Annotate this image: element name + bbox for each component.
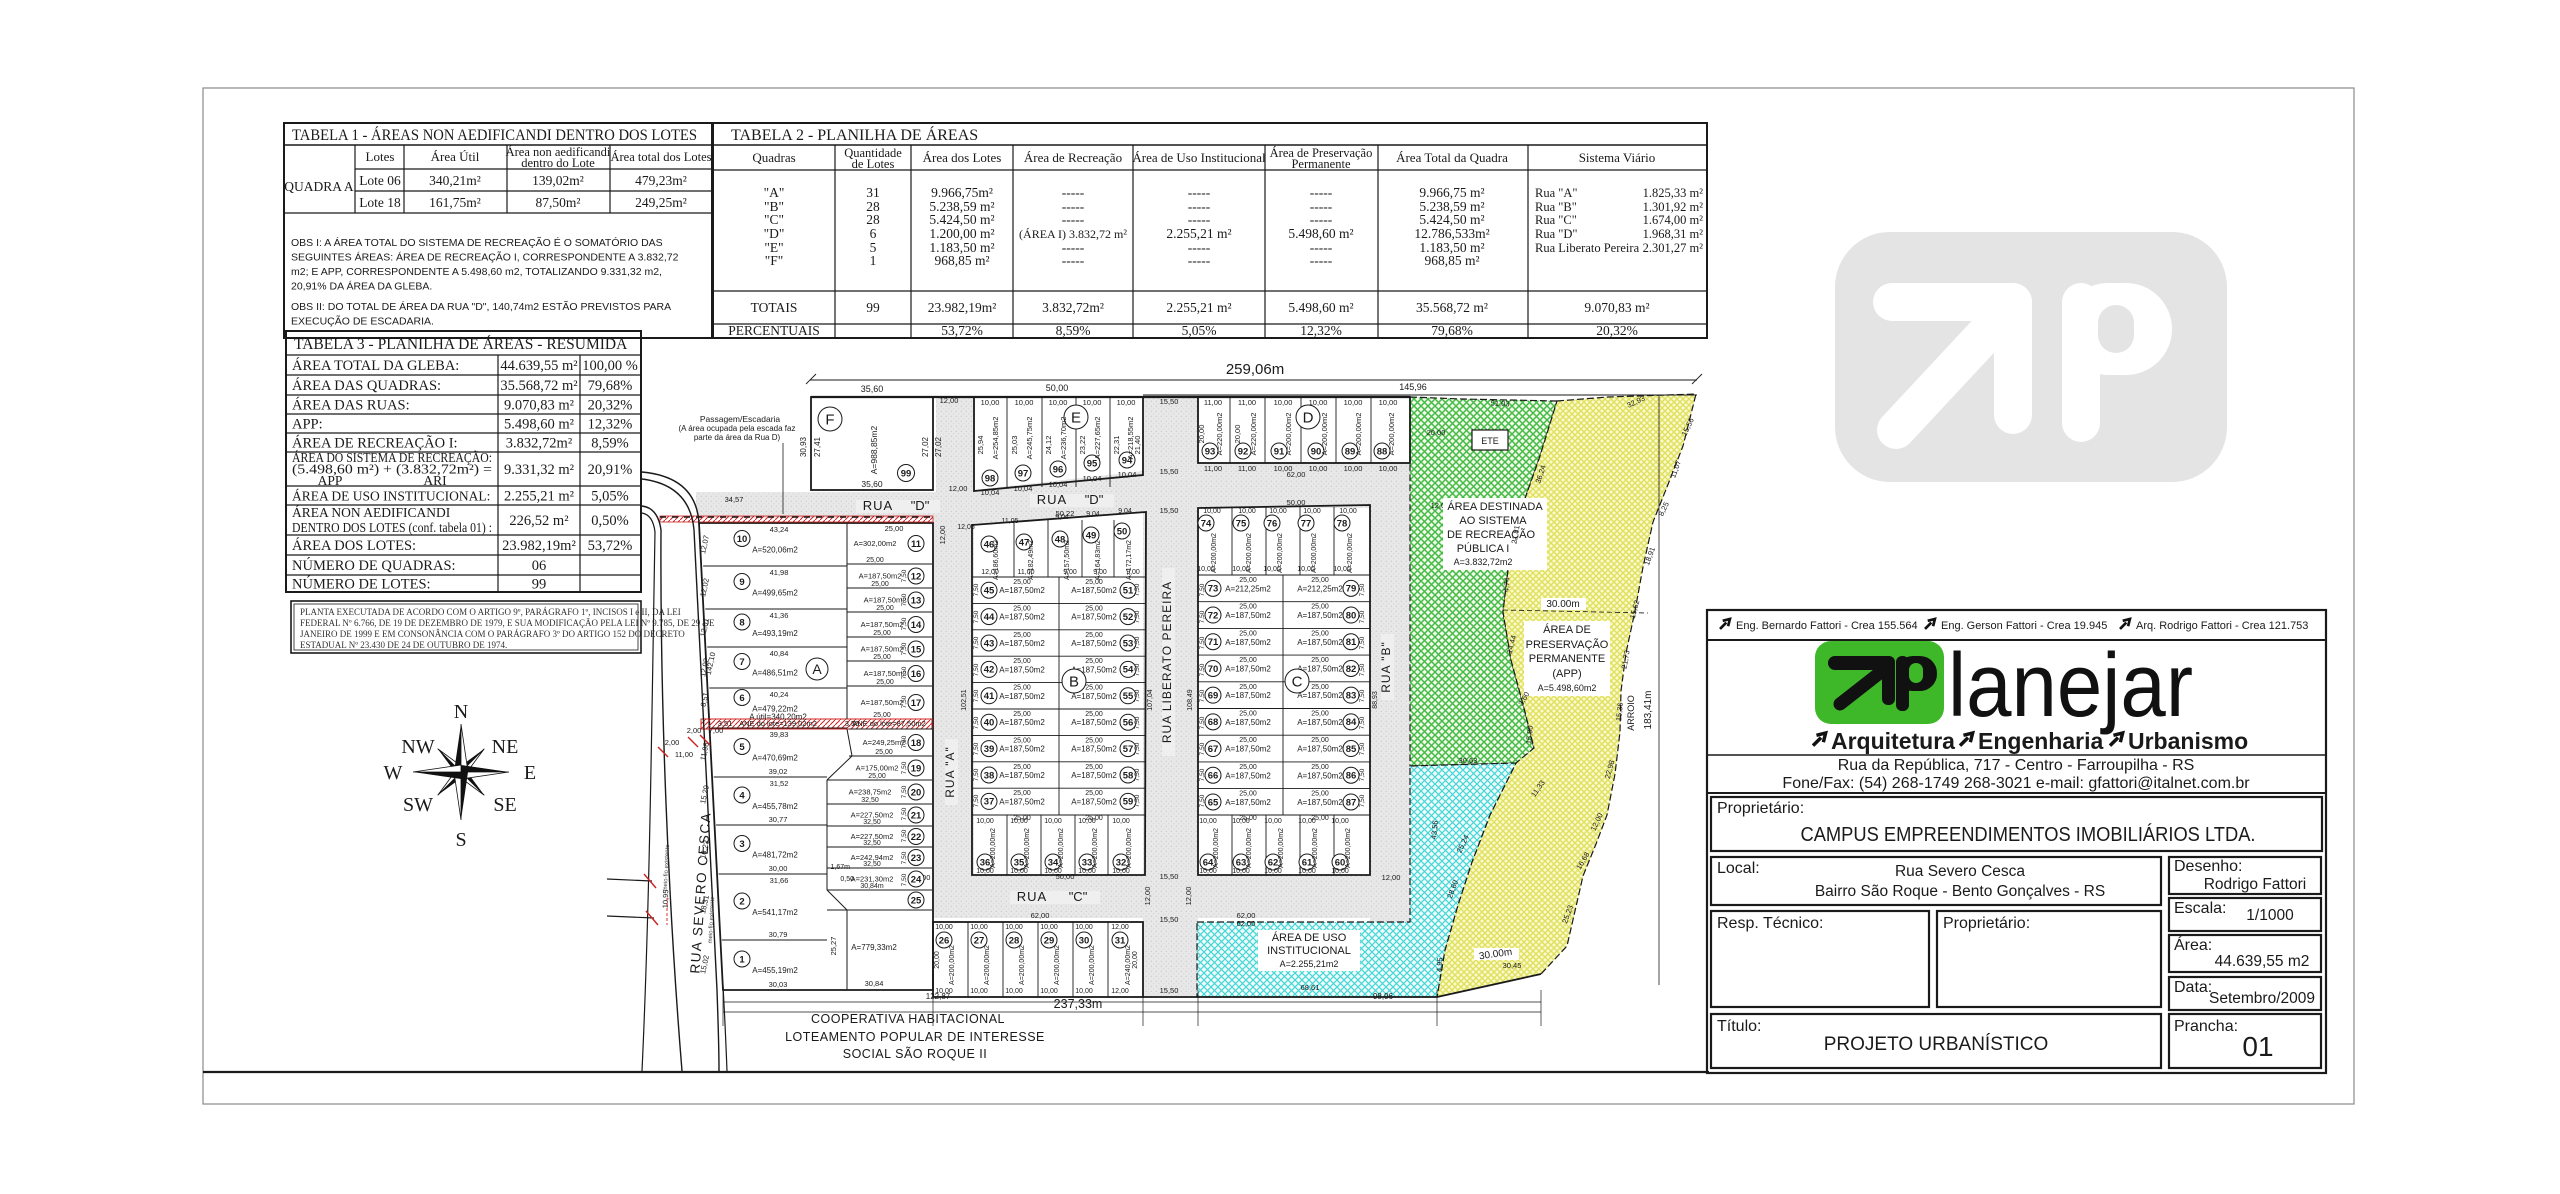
svg-text:62,00: 62,00 (1237, 919, 1256, 928)
svg-text:9,04: 9,04 (1118, 508, 1132, 515)
svg-text:92: 92 (1238, 446, 1249, 457)
svg-text:31,66: 31,66 (770, 876, 789, 885)
svg-text:10,00: 10,00 (1232, 566, 1250, 573)
svg-text:11,00: 11,00 (1204, 464, 1222, 473)
svg-text:Prancha:: Prancha: (2174, 1018, 2238, 1035)
svg-text:10,00: 10,00 (1379, 464, 1398, 473)
svg-text:A=187,50m2: A=187,50m2 (1071, 692, 1117, 701)
svg-text:A=200,00m2: A=200,00m2 (949, 945, 956, 985)
svg-text:2.301,27 m²: 2.301,27 m² (1643, 241, 1704, 255)
svg-text:97: 97 (1018, 468, 1029, 479)
svg-text:A=493,19m2: A=493,19m2 (752, 629, 798, 638)
svg-text:7,50: 7,50 (973, 794, 980, 807)
svg-text:A=187,50m2: A=187,50m2 (861, 620, 904, 629)
svg-text:10,00: 10,00 (970, 988, 988, 995)
svg-text:100,00 %: 100,00 % (582, 358, 638, 374)
svg-text:10,00: 10,00 (1005, 924, 1023, 931)
svg-text:A=486,51m2: A=486,51m2 (752, 669, 798, 678)
svg-text:10,00: 10,00 (1117, 398, 1136, 407)
svg-text:30,84m: 30,84m (860, 883, 884, 890)
svg-text:15,50: 15,50 (1160, 467, 1179, 476)
svg-text:m2; E APP, CORRESPONDENTE: m2; E APP, CORRESPONDENTE A 5.498,60 m2,… (291, 266, 662, 278)
svg-text:A=187,50m2: A=187,50m2 (1071, 586, 1117, 595)
svg-text:A=187,50m2: A=187,50m2 (1071, 771, 1117, 780)
svg-text:968,85 m²: 968,85 m² (934, 253, 989, 268)
svg-text:39,02: 39,02 (769, 767, 788, 776)
svg-text:25,00: 25,00 (1013, 685, 1031, 692)
svg-text:-----: ----- (1188, 185, 1211, 200)
svg-text:A=187,50m2: A=187,50m2 (1225, 638, 1271, 647)
svg-text:Rua "B": Rua "B" (1535, 200, 1577, 214)
svg-text:87,50m²: 87,50m² (536, 195, 581, 210)
svg-text:25,00: 25,00 (1239, 711, 1257, 718)
svg-text:F: F (825, 411, 834, 428)
svg-text:11,05: 11,05 (1002, 518, 1019, 525)
svg-text:139,02m²: 139,02m² (532, 173, 584, 188)
svg-text:20,00: 20,00 (934, 951, 941, 969)
svg-text:25,00: 25,00 (1311, 630, 1329, 637)
svg-text:10,00: 10,00 (970, 924, 988, 931)
svg-text:A=187,50m2: A=187,50m2 (861, 645, 904, 654)
svg-text:Rodrigo Fattori: Rodrigo Fattori (2204, 876, 2307, 893)
svg-text:-----: ----- (1188, 253, 1211, 268)
svg-text:8: 8 (739, 617, 744, 628)
svg-text:25,00: 25,00 (1085, 658, 1103, 665)
svg-text:32,50: 32,50 (863, 840, 881, 847)
svg-text:8,59%: 8,59% (591, 436, 628, 452)
svg-text:12,00: 12,00 (981, 569, 999, 576)
svg-text:30,79: 30,79 (769, 930, 788, 939)
svg-text:Lote 06: Lote 06 (359, 173, 401, 188)
svg-text:15,50: 15,50 (1160, 872, 1179, 881)
svg-text:98,96: 98,96 (1373, 992, 1394, 1001)
svg-text:10,00: 10,00 (1078, 818, 1096, 825)
svg-text:10,04: 10,04 (1014, 484, 1033, 493)
svg-text:43,24: 43,24 (770, 525, 789, 534)
svg-text:25,00: 25,00 (871, 581, 889, 588)
svg-text:Área de Recreação: Área de Recreação (1024, 150, 1122, 165)
svg-text:Rua "D": Rua "D" (1535, 227, 1578, 241)
svg-text:25,00: 25,00 (1239, 630, 1257, 637)
svg-text:NW: NW (401, 736, 434, 758)
svg-text:249,25m²: 249,25m² (635, 195, 687, 210)
svg-text:A=254,85m2: A=254,85m2 (991, 417, 1000, 460)
svg-text:51: 51 (1123, 586, 1134, 597)
svg-text:A=187,50m2: A=187,50m2 (1225, 611, 1271, 620)
svg-text:CAMPUS EMPREENDIMENTOS IMOBILI: CAMPUS EMPREENDIMENTOS IMOBILIÁRIOS LTDA… (1801, 823, 2256, 846)
svg-text:9,00: 9,00 (1126, 569, 1140, 576)
svg-text:38: 38 (984, 770, 995, 781)
svg-text:Título:: Título: (1717, 1018, 1761, 1035)
svg-text:1.968,31 m²: 1.968,31 m² (1643, 227, 1704, 241)
svg-text:A=187,50m2: A=187,50m2 (999, 718, 1045, 727)
svg-text:7,50: 7,50 (901, 735, 908, 748)
svg-text:5: 5 (739, 742, 745, 753)
svg-text:7,50: 7,50 (1199, 689, 1206, 702)
svg-text:01: 01 (2242, 1031, 2273, 1062)
svg-text:88,93: 88,93 (1372, 691, 1379, 709)
svg-text:A=220,00m2: A=220,00m2 (1215, 413, 1224, 456)
svg-text:10,00: 10,00 (1197, 566, 1215, 573)
svg-text:5.424,50 m²: 5.424,50 m² (1419, 212, 1484, 227)
svg-text:99: 99 (532, 577, 547, 593)
svg-text:A=187,50m2: A=187,50m2 (859, 572, 902, 581)
svg-text:21,40: 21,40 (1133, 436, 1142, 455)
svg-text:A=200,00m2: A=200,00m2 (990, 828, 997, 868)
svg-text:25,00: 25,00 (1013, 711, 1031, 718)
svg-text:Engenharia: Engenharia (1978, 728, 2103, 754)
svg-text:25,00: 25,00 (1013, 632, 1031, 639)
svg-text:A=187,50m2: A=187,50m2 (1225, 798, 1271, 807)
svg-text:A=187,50m2: A=187,50m2 (1225, 771, 1271, 780)
svg-text:A=3.832,72m2: A=3.832,72m2 (1454, 557, 1513, 567)
svg-text:E: E (524, 762, 536, 784)
svg-text:A=187,50m2: A=187,50m2 (999, 613, 1045, 622)
svg-text:13: 13 (911, 595, 922, 606)
svg-text:A=212,25m2: A=212,25m2 (1225, 584, 1271, 593)
svg-text:10,00: 10,00 (1344, 398, 1363, 407)
svg-text:7,50: 7,50 (1199, 663, 1206, 676)
svg-text:99: 99 (901, 468, 912, 479)
svg-text:10,04: 10,04 (1118, 470, 1137, 479)
svg-text:7,50: 7,50 (1134, 583, 1141, 596)
svg-text:63: 63 (1236, 857, 1247, 868)
svg-text:10,00: 10,00 (1274, 398, 1293, 407)
svg-text:25,00: 25,00 (1013, 790, 1031, 797)
svg-text:23.982,19m²: 23.982,19m² (928, 300, 997, 315)
svg-text:40,24: 40,24 (770, 690, 789, 699)
svg-text:RUA LIBERATO PEREIRA: RUA LIBERATO PEREIRA (1160, 581, 1174, 743)
svg-text:12,02: 12,02 (698, 577, 711, 597)
svg-text:44.639,55 m²: 44.639,55 m² (500, 358, 578, 374)
svg-text:108,49: 108,49 (1187, 689, 1194, 711)
svg-text:62: 62 (1268, 857, 1279, 868)
svg-text:Proprietário:: Proprietário: (1717, 800, 1804, 817)
svg-text:A=5.498,60m2: A=5.498,60m2 (1538, 683, 1597, 693)
svg-text:79,68%: 79,68% (588, 378, 633, 394)
svg-text:10,00: 10,00 (1309, 398, 1328, 407)
svg-text:22: 22 (911, 832, 922, 843)
svg-text:PÚBLICA I: PÚBLICA I (1457, 542, 1510, 555)
svg-text:10,00: 10,00 (981, 398, 1000, 407)
svg-text:7,50: 7,50 (973, 742, 980, 755)
svg-text:9.966,75 m²: 9.966,75 m² (1419, 185, 1484, 200)
svg-text:7,50: 7,50 (1134, 768, 1141, 781)
svg-text:NE: NE (492, 736, 519, 758)
svg-text:31,52: 31,52 (770, 779, 789, 788)
svg-text:7,50: 7,50 (973, 663, 980, 676)
svg-text:10,00: 10,00 (1044, 868, 1062, 875)
svg-text:10,00: 10,00 (1015, 398, 1034, 407)
svg-text:19: 19 (911, 763, 922, 774)
svg-text:A=455,78m2: A=455,78m2 (752, 802, 798, 811)
svg-text:62,00: 62,00 (1031, 911, 1050, 920)
svg-text:25,00: 25,00 (1085, 790, 1103, 797)
svg-text:NÚMERO DE QUADRAS:: NÚMERO DE QUADRAS: (292, 557, 456, 574)
svg-text:102,51: 102,51 (961, 689, 968, 711)
svg-text:30,45: 30,45 (1503, 961, 1522, 970)
svg-text:A=200,00m2: A=200,00m2 (1019, 945, 1026, 985)
svg-text:30,93: 30,93 (799, 436, 808, 457)
svg-text:A=187,50m2: A=187,50m2 (999, 586, 1045, 595)
svg-text:7,50: 7,50 (1134, 663, 1141, 676)
svg-text:53: 53 (1123, 638, 1134, 649)
svg-text:10,00: 10,00 (1264, 818, 1282, 825)
svg-text:15,50: 15,50 (1160, 986, 1179, 995)
svg-text:10,00: 10,00 (1083, 398, 1102, 407)
svg-text:10,00: 10,00 (1040, 988, 1058, 995)
svg-text:9,04: 9,04 (1055, 514, 1069, 521)
svg-text:10,00: 10,00 (1112, 818, 1130, 825)
svg-text:43,56: 43,56 (1429, 820, 1440, 839)
svg-text:ÁREA TOTAL DA GLEBA:: ÁREA TOTAL DA GLEBA: (292, 357, 459, 374)
svg-text:A=200,00m2: A=200,00m2 (1058, 828, 1065, 868)
svg-text:A=187,50m2: A=187,50m2 (1225, 691, 1271, 700)
svg-text:10,00: 10,00 (1331, 818, 1349, 825)
svg-text:Arquitetura: Arquitetura (1831, 728, 1955, 754)
svg-text:98: 98 (985, 473, 996, 484)
svg-text:25,00: 25,00 (1085, 685, 1103, 692)
svg-text:11,00: 11,00 (675, 750, 693, 759)
svg-text:32: 32 (1116, 857, 1127, 868)
svg-text:1.674,00 m²: 1.674,00 m² (1643, 213, 1704, 227)
svg-text:A=200,00m2: A=200,00m2 (1387, 413, 1396, 456)
svg-text:7,50: 7,50 (901, 666, 908, 679)
svg-text:20: 20 (911, 787, 922, 798)
svg-text:7,50: 7,50 (973, 716, 980, 729)
svg-text:JANEIRO DE 1999 E EM CONSONÂNC: JANEIRO DE 1999 E EM CONSONÂNCIA COM O P… (300, 629, 685, 639)
svg-text:40,84: 40,84 (770, 649, 789, 658)
svg-text:"C": "C" (764, 212, 784, 227)
svg-text:10,00: 10,00 (1075, 988, 1093, 995)
svg-text:APP: APP (318, 473, 343, 488)
svg-text:7,50: 7,50 (1134, 742, 1141, 755)
svg-text:A=187,50m2: A=187,50m2 (999, 797, 1045, 806)
svg-text:COOPERATIVA HABITACIONAL: COOPERATIVA HABITACIONAL (811, 1012, 1005, 1026)
svg-text:25,00: 25,00 (1013, 737, 1031, 744)
svg-text:51,03: 51,03 (1491, 399, 1510, 409)
svg-text:7,50: 7,50 (1199, 794, 1206, 807)
svg-text:30.00m: 30.00m (1546, 599, 1579, 610)
svg-text:A=988,85m2: A=988,85m2 (869, 426, 879, 475)
svg-text:Área:: Área: (2174, 935, 2212, 954)
svg-text:12,00: 12,00 (1111, 988, 1129, 995)
svg-text:3.832,72m²: 3.832,72m² (506, 436, 573, 452)
svg-text:25,00: 25,00 (1311, 577, 1329, 584)
svg-text:25,00: 25,00 (868, 773, 886, 780)
svg-text:7,50: 7,50 (1134, 636, 1141, 649)
svg-text:259,06m: 259,06m (1226, 361, 1284, 378)
svg-text:27: 27 (974, 935, 985, 946)
svg-text:10,00: 10,00 (976, 868, 994, 875)
svg-text:10,00: 10,00 (1049, 398, 1068, 407)
svg-text:58: 58 (1123, 770, 1134, 781)
svg-text:39,83: 39,83 (770, 730, 789, 739)
svg-text:45: 45 (984, 586, 995, 597)
svg-text:7,50: 7,50 (1359, 768, 1366, 781)
svg-text:Rua "A": Rua "A" (1535, 186, 1578, 200)
svg-text:9: 9 (739, 577, 744, 588)
svg-text:7,50: 7,50 (973, 768, 980, 781)
svg-text:Área dos Lotes: Área dos Lotes (923, 150, 1002, 165)
svg-text:21,73: 21,73 (1619, 650, 1631, 670)
svg-text:22,31: 22,31 (1112, 436, 1121, 455)
svg-text:88: 88 (1377, 446, 1388, 457)
svg-text:RUA: RUA (1037, 492, 1067, 507)
svg-text:14: 14 (911, 620, 922, 631)
svg-text:41,98: 41,98 (770, 568, 789, 577)
svg-text:A=245,75m2: A=245,75m2 (1025, 417, 1034, 460)
svg-text:7,50: 7,50 (901, 695, 908, 708)
svg-text:27,02: 27,02 (934, 436, 943, 457)
svg-text:25,00: 25,00 (1311, 711, 1329, 718)
svg-text:25,00: 25,00 (1311, 657, 1329, 664)
svg-text:PERCENTUAIS: PERCENTUAIS (728, 323, 820, 338)
svg-text:"C": "C" (1069, 889, 1088, 904)
svg-text:10,04: 10,04 (1049, 480, 1068, 489)
svg-text:70: 70 (1208, 664, 1219, 675)
svg-text:1,67m: 1,67m (831, 864, 851, 871)
svg-text:4: 4 (739, 790, 745, 801)
svg-text:25,00: 25,00 (1239, 604, 1257, 611)
svg-text:ÁREA DESTINADA: ÁREA DESTINADA (1447, 500, 1543, 513)
svg-text:21: 21 (911, 810, 922, 821)
svg-text:26: 26 (939, 935, 950, 946)
svg-text:A=302,00m2: A=302,00m2 (854, 539, 897, 548)
svg-text:(ÁREA I) 3.832,72 m²: (ÁREA I) 3.832,72 m² (1019, 227, 1127, 241)
svg-text:7,50: 7,50 (901, 569, 908, 582)
svg-text:A=200,00m2: A=200,00m2 (1126, 828, 1133, 868)
svg-text:7,50: 7,50 (901, 617, 908, 630)
svg-text:A=779,33m2: A=779,33m2 (851, 943, 897, 952)
svg-text:7,50: 7,50 (1199, 768, 1206, 781)
svg-text:15,50: 15,50 (1160, 506, 1179, 515)
svg-text:1: 1 (739, 954, 745, 965)
svg-text:25,00: 25,00 (876, 679, 894, 686)
svg-text:A=200,00m2: A=200,00m2 (1345, 828, 1352, 868)
svg-text:25,00: 25,00 (1311, 737, 1329, 744)
svg-text:57: 57 (1123, 744, 1134, 755)
svg-text:4,74: 4,74 (1501, 577, 1511, 592)
svg-text:7: 7 (739, 657, 744, 668)
svg-text:9.070,83 m²: 9.070,83 m² (1584, 300, 1649, 315)
svg-text:A=187,50m2: A=187,50m2 (1297, 745, 1343, 754)
svg-text:A=187,50m2: A=187,50m2 (1225, 664, 1271, 673)
svg-text:20,91%: 20,91% (588, 462, 633, 478)
svg-text:A=187,50m2: A=187,50m2 (1297, 691, 1343, 700)
svg-text:15,36: 15,36 (1614, 702, 1625, 721)
svg-text:A=200,00m2: A=200,00m2 (1312, 828, 1319, 868)
svg-text:A=200,00m2: A=200,00m2 (1054, 945, 1061, 985)
svg-text:53,72%: 53,72% (941, 323, 983, 338)
svg-text:25,00: 25,00 (1311, 791, 1329, 798)
svg-text:25,00: 25,00 (1085, 579, 1103, 586)
svg-text:3: 3 (739, 839, 744, 850)
svg-text:A=187,50m2: A=187,50m2 (861, 698, 904, 707)
svg-text:Passagem/Escadaria: Passagem/Escadaria (700, 414, 781, 424)
svg-text:"A": "A" (764, 185, 785, 200)
svg-text:15,90: 15,90 (1524, 725, 1535, 744)
svg-text:17: 17 (911, 698, 922, 709)
svg-text:82: 82 (1346, 664, 1357, 675)
svg-text:RUA: RUA (863, 498, 893, 513)
svg-text:7,50: 7,50 (1359, 716, 1366, 729)
svg-text:25,00: 25,00 (876, 605, 894, 612)
svg-text:7,50: 7,50 (1199, 610, 1206, 623)
svg-text:A=187,50m2: A=187,50m2 (1297, 718, 1343, 727)
svg-text:Área Útil: Área Útil (431, 149, 480, 164)
svg-text:7,50: 7,50 (901, 829, 908, 842)
svg-text:9,04: 9,04 (1086, 511, 1100, 518)
svg-text:ÁREA DE: ÁREA DE (1543, 623, 1591, 636)
svg-text:parte da área da Rua D): parte da área da Rua D) (694, 433, 781, 442)
svg-text:ANE do lote=87,50m2: ANE do lote=87,50m2 (852, 719, 926, 728)
svg-text:Desenho:: Desenho: (2174, 858, 2243, 875)
svg-text:AO SISTEMA: AO SISTEMA (1459, 515, 1527, 527)
svg-text:Fone/Fax: (54) 268-1749 268-30: Fone/Fax: (54) 268-1749 268-3021 e-mail:… (1782, 775, 2250, 792)
svg-text:25,00: 25,00 (873, 712, 891, 719)
svg-text:Lotes: Lotes (366, 149, 395, 164)
svg-text:RUA SEVERO CESCA: RUA SEVERO CESCA (687, 811, 713, 974)
svg-text:1: 1 (870, 253, 877, 268)
svg-text:25,00: 25,00 (1239, 684, 1257, 691)
svg-text:FEDERAL Nº 6.766, DE 19 DE DEZ: FEDERAL Nº 6.766, DE 19 DE DEZEMBRO DE 1… (300, 618, 715, 628)
svg-text:4,95: 4,95 (1434, 957, 1444, 972)
svg-text:ÁREA DE USO: ÁREA DE USO (1272, 931, 1347, 944)
svg-text:25,00: 25,00 (1239, 577, 1257, 584)
svg-text:87: 87 (1346, 797, 1357, 808)
svg-text:RUA: RUA (1017, 889, 1047, 904)
svg-text:31: 31 (866, 185, 880, 200)
svg-text:7,50: 7,50 (1199, 716, 1206, 729)
svg-text:7,50: 7,50 (901, 851, 908, 864)
svg-text:35.568,72 m²: 35.568,72 m² (1416, 300, 1488, 315)
svg-text:10,00: 10,00 (1078, 868, 1096, 875)
svg-text:7,50: 7,50 (1199, 636, 1206, 649)
svg-text:9.331,32 m²: 9.331,32 m² (504, 462, 575, 478)
svg-text:A=249,25m2: A=249,25m2 (863, 738, 906, 747)
svg-text:7,00: 7,00 (709, 726, 724, 735)
svg-text:Rua "C": Rua "C" (1535, 213, 1577, 227)
svg-text:"F": "F" (765, 253, 784, 268)
svg-text:20,00: 20,00 (1233, 425, 1242, 444)
svg-text:A=187,50m2: A=187,50m2 (1071, 613, 1117, 622)
svg-text:25,00: 25,00 (1085, 711, 1103, 718)
svg-text:Área Total da Quadra: Área Total da Quadra (1396, 150, 1508, 165)
svg-text:ÁREA DOS LOTES:: ÁREA DOS LOTES: (292, 537, 416, 554)
svg-text:237,33m: 237,33m (1054, 997, 1103, 1011)
svg-text:20.00: 20.00 (1427, 428, 1446, 437)
svg-text:12,05: 12,05 (957, 524, 975, 531)
svg-text:52: 52 (1123, 612, 1134, 623)
svg-text:74: 74 (1201, 518, 1212, 529)
svg-text:Área de Uso Institucional: Área de Uso Institucional (1132, 150, 1266, 165)
svg-text:A=175,00m2: A=175,00m2 (856, 764, 899, 773)
svg-text:84: 84 (1346, 717, 1357, 728)
svg-text:7,50: 7,50 (1134, 794, 1141, 807)
svg-text:25,00: 25,00 (1085, 605, 1103, 612)
svg-text:12,00: 12,00 (1143, 887, 1152, 906)
svg-text:11,00: 11,00 (1018, 569, 1035, 576)
svg-text:12: 12 (911, 571, 922, 582)
svg-text:25,00: 25,00 (1013, 764, 1031, 771)
svg-text:C: C (1292, 673, 1303, 690)
svg-text:73: 73 (1208, 584, 1219, 595)
svg-text:10,00: 10,00 (1263, 566, 1281, 573)
svg-text:30: 30 (1079, 935, 1090, 946)
svg-text:E: E (1071, 409, 1081, 426)
svg-text:PLANTA EXECUTADA DE ACORDO: PLANTA EXECUTADA DE ACORDO COM O ARTIGO … (300, 607, 681, 617)
